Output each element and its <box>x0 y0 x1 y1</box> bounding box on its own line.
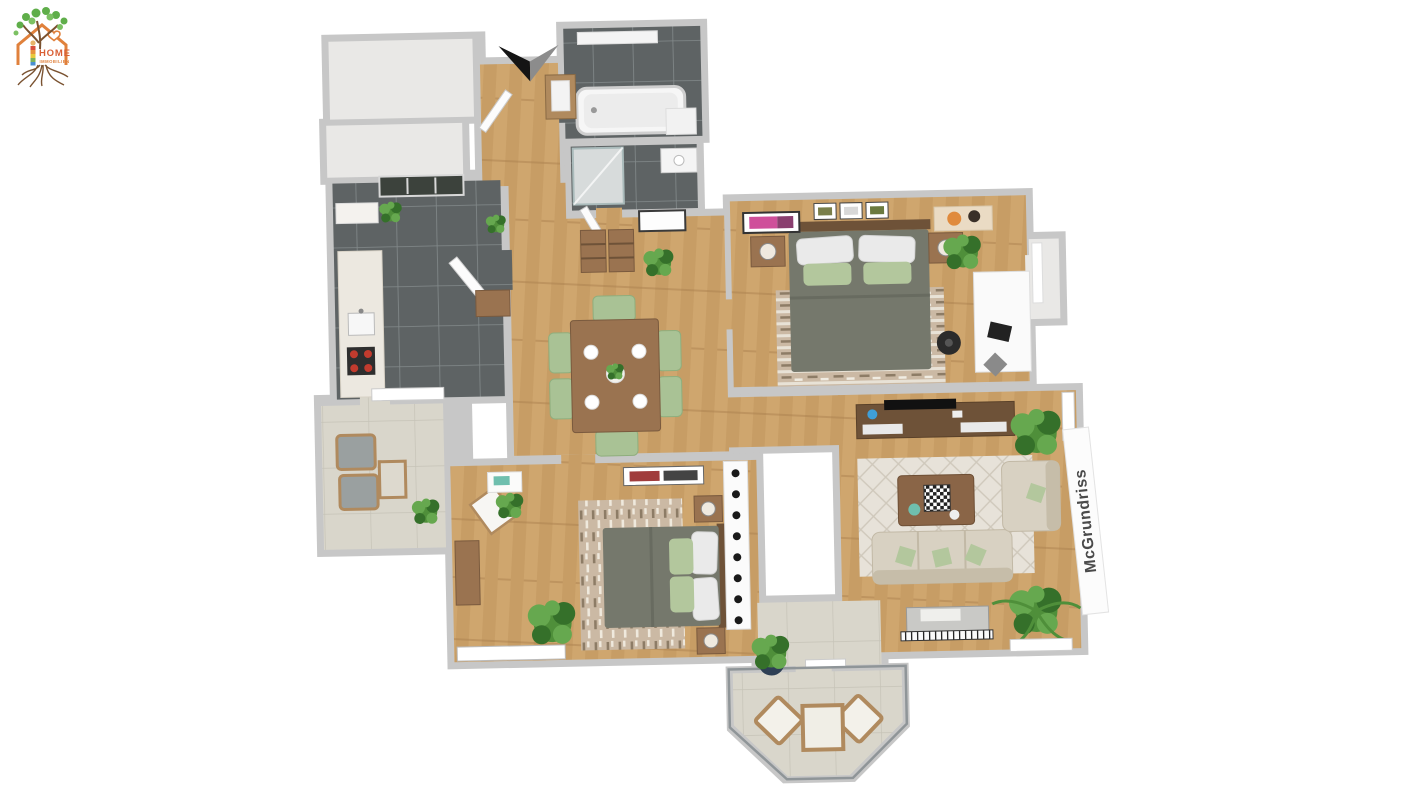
french-window <box>457 645 565 661</box>
plate <box>632 344 646 358</box>
kitchen-window <box>379 175 463 197</box>
pillow-green <box>863 262 911 285</box>
corner-art <box>934 206 992 231</box>
logo-roots <box>18 65 68 87</box>
tv-unit-drawer <box>863 424 903 435</box>
hall-shelf <box>580 230 606 273</box>
dining-chair <box>596 429 639 456</box>
plant <box>751 634 789 669</box>
logo-subtitle: IMMOBILIEN <box>40 59 70 64</box>
plant <box>943 234 981 269</box>
logo-figure <box>30 40 35 65</box>
sink-basin <box>674 155 684 165</box>
door-opening <box>596 208 622 221</box>
floor-plan-image: McGrundriss HOME IMMOBILIEN <box>0 0 1422 800</box>
corridor-floor <box>726 395 841 447</box>
company-logo: HOME IMMOBILIEN <box>14 7 71 87</box>
wall-console <box>639 210 685 231</box>
lamp <box>704 634 718 648</box>
plant-large <box>527 600 575 645</box>
window <box>372 387 444 401</box>
logo-title: HOME <box>39 48 71 59</box>
bath-shelf <box>577 31 657 45</box>
loggia-table <box>379 461 406 498</box>
wardrobe-door <box>551 81 570 111</box>
sofa-front <box>873 567 1013 584</box>
window <box>1010 638 1072 651</box>
tray <box>494 476 510 485</box>
plant <box>606 363 624 379</box>
apartment-plan: McGrundriss <box>306 11 1112 793</box>
plant <box>486 214 506 233</box>
art-canvas <box>629 471 659 482</box>
pillow <box>691 577 720 621</box>
door-opening <box>724 299 735 329</box>
art-canvas <box>870 206 884 214</box>
balcony-table <box>802 705 843 750</box>
chessboard <box>924 485 951 512</box>
dining-chair <box>658 376 683 416</box>
radiator <box>723 461 751 629</box>
art-canvas <box>777 216 793 228</box>
plate <box>633 394 647 408</box>
hall-floor-strip <box>508 183 566 224</box>
dining-chair <box>657 330 682 370</box>
bath-cabinet <box>666 108 697 135</box>
kitchen-sink <box>348 313 374 336</box>
storage-room-2-floor <box>326 123 463 178</box>
hall-shelf <box>608 229 634 272</box>
dining-chair <box>549 333 574 373</box>
balcony-door-window <box>1032 243 1043 303</box>
sideboard <box>476 290 511 317</box>
piano-keys <box>901 630 993 641</box>
blanket-fold <box>651 527 653 627</box>
bathtub-inner <box>584 92 679 128</box>
loggia-chair <box>337 435 376 470</box>
plant-large <box>1010 408 1061 455</box>
pillow-green <box>803 263 851 286</box>
kitchen-cabinet <box>336 203 378 224</box>
pillow-green <box>669 538 694 574</box>
tv <box>884 399 956 411</box>
pillow <box>796 235 854 265</box>
pillow-green <box>670 576 695 612</box>
art-canvas <box>844 207 858 215</box>
lamp <box>760 243 776 259</box>
dining-chair <box>593 295 636 322</box>
piano-top <box>920 609 960 622</box>
art-canvas <box>663 470 697 481</box>
tv-unit-drawer <box>961 422 1007 433</box>
lamp <box>701 502 715 516</box>
plate <box>585 395 599 409</box>
desk <box>973 271 1031 372</box>
art-canvas <box>818 207 832 215</box>
pillow <box>858 235 915 263</box>
pillow <box>691 532 718 575</box>
dresser <box>455 541 480 605</box>
armchair-back <box>1045 460 1060 530</box>
plant <box>496 493 524 519</box>
loggia-chair <box>340 475 379 510</box>
plant <box>643 248 674 276</box>
art-canvas <box>749 216 777 229</box>
storage-room-1-floor <box>328 39 474 120</box>
plant <box>379 201 402 222</box>
plate <box>584 345 598 359</box>
door-opening <box>500 250 513 290</box>
door-opening <box>561 454 595 467</box>
plant <box>412 498 440 524</box>
dining-chair <box>550 379 575 419</box>
floor-plan-render: McGrundriss HOME IMMOBILIEN <box>0 0 1422 800</box>
decor-box <box>952 411 962 418</box>
stove <box>347 347 376 376</box>
